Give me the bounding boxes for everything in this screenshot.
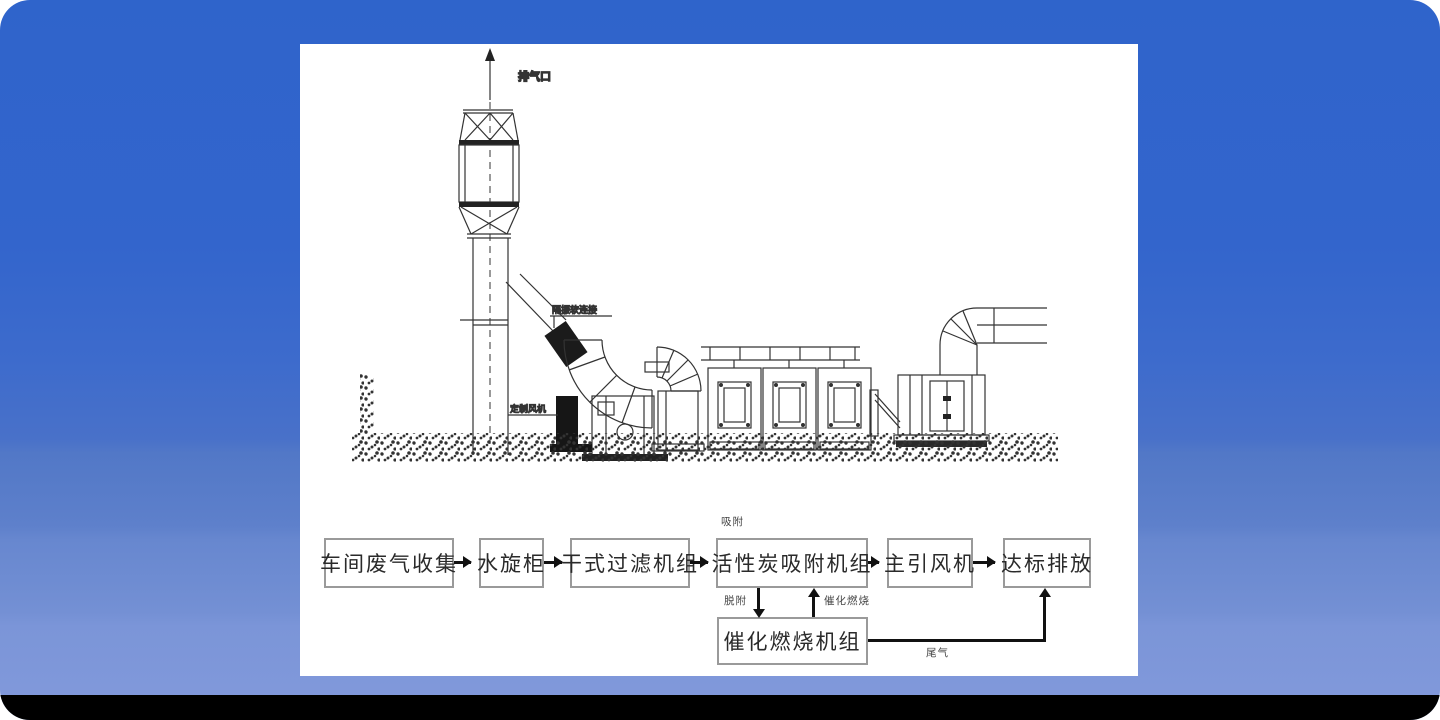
- flow-arrow-combustion-up: [812, 596, 815, 617]
- flex-connection-label: 隔振软连接: [552, 304, 597, 315]
- flow-box-workshop-gas-collection: 车间废气收集: [324, 538, 454, 588]
- diagonal-duct: [506, 274, 566, 332]
- tail-gas-line: [868, 639, 1046, 642]
- exhaust-outlet-label: 排气口: [518, 69, 551, 83]
- desorption-label: 脱附: [724, 593, 747, 608]
- flow-box-compliant-discharge: 达标排放: [1003, 538, 1091, 588]
- exhaust-arrow: [485, 48, 495, 100]
- flow-box-water-spin-cabinet: 水旋柜: [479, 538, 544, 588]
- custom-fan-callout: 定制风机: [508, 403, 558, 415]
- desktop-background: 排气口 隔振软连接 定制风机 车间废气收集 水旋柜 干式过滤机组 活性炭吸附机组…: [0, 0, 1440, 720]
- chimney-stack: [460, 238, 508, 455]
- tail-gas-label: 尾气: [926, 645, 949, 660]
- document-panel: 排气口 隔振软连接 定制风机 车间废气收集 水旋柜 干式过滤机组 活性炭吸附机组…: [300, 44, 1138, 676]
- ground-texture: [352, 374, 1058, 462]
- adsorption-label: 吸附: [721, 514, 744, 529]
- flow-arrow-1: [454, 561, 471, 564]
- flow-arrow-4: [868, 561, 879, 564]
- tail-gas-line-up: [1043, 596, 1046, 642]
- equipment-drawing: 排气口 隔振软连接 定制风机: [300, 44, 1138, 519]
- flow-arrow-5: [973, 561, 995, 564]
- flow-arrow-2: [544, 561, 562, 564]
- flow-box-carbon-adsorption-unit: 活性炭吸附机组: [716, 538, 868, 588]
- flex-connection-callout: 隔振软连接: [550, 304, 612, 328]
- flow-box-main-draft-fan: 主引风机: [887, 538, 973, 588]
- flow-box-dry-filter-unit: 干式过滤机组: [570, 538, 690, 588]
- catalytic-combustion-label: 催化燃烧: [824, 593, 870, 608]
- custom-fan-label: 定制风机: [510, 403, 546, 414]
- segmented-elbow-riser: [657, 347, 701, 391]
- chimney-silencer: [459, 110, 519, 238]
- flow-arrow-desorption-down: [757, 588, 760, 610]
- flow-arrow-3: [690, 561, 708, 564]
- horizontal-duct: [701, 347, 860, 368]
- support-brace: [870, 390, 900, 436]
- bottom-black-bar: [0, 695, 1440, 720]
- flow-box-catalytic-combustion-unit: 催化燃烧机组: [717, 617, 868, 665]
- right-elbow-duct: [940, 308, 1047, 375]
